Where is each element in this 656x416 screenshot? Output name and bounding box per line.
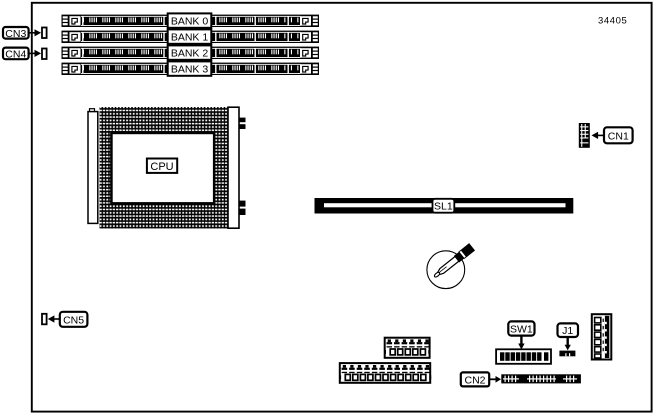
svg-text:BANK 2: BANK 2 — [171, 48, 209, 60]
svg-text:34405: 34405 — [598, 16, 627, 27]
svg-text:CN1: CN1 — [608, 130, 629, 142]
svg-text:CN3: CN3 — [5, 28, 26, 40]
svg-text:SL1: SL1 — [434, 201, 453, 213]
svg-text:BANK 3: BANK 3 — [171, 64, 209, 76]
svg-text:SW1: SW1 — [510, 323, 533, 335]
svg-text:BANK 0: BANK 0 — [171, 16, 209, 28]
svg-text:J1: J1 — [562, 325, 573, 337]
svg-text:BANK 1: BANK 1 — [171, 32, 209, 44]
svg-text:CPU: CPU — [150, 161, 173, 173]
svg-text:CN5: CN5 — [63, 314, 84, 326]
svg-text:CN4: CN4 — [5, 48, 26, 60]
svg-text:CN2: CN2 — [464, 374, 485, 386]
